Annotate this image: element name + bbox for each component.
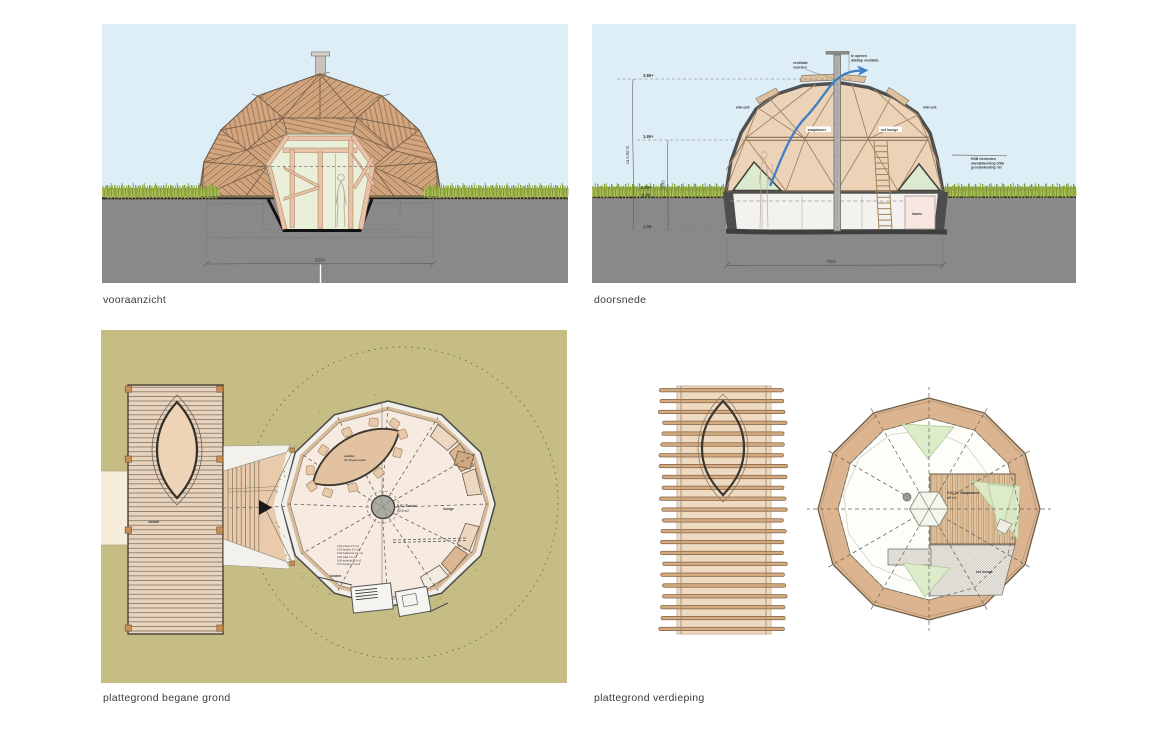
svg-text:voorzien: voorzien [793,65,807,69]
svg-text:gevelbekleding riet: gevelbekleding riet [971,166,1003,170]
svg-text:0.00: 0.00 [642,193,651,198]
svg-text:5500: 5500 [315,258,326,263]
svg-text:2590: 2590 [661,180,666,190]
svg-text:0.20+: 0.20+ [641,185,652,190]
svg-text:x.x m2: x.x m2 [947,496,957,500]
svg-text:3.80+: 3.80+ [643,73,654,78]
svg-text:0.03 keuken 6.2 m2: 0.03 keuken 6.2 m2 [337,548,360,552]
svg-text:1.00-: 1.00- [643,224,653,229]
svg-text:wtw unit: wtw unit [922,106,937,110]
svg-text:dakflap ventilatie: dakflap ventilatie [851,58,879,62]
svg-text:net lounge: net lounge [881,128,898,132]
svg-text:doorsnede: doorsnede [594,294,646,306]
svg-text:10-12 personen: 10-12 personen [344,458,366,462]
svg-text:7000: 7000 [826,259,837,264]
svg-text:net lounge: net lounge [976,570,993,574]
svg-text:plattegrond begane grond: plattegrond begane grond [103,692,230,704]
svg-text:plattegrond verdieping: plattegrond verdieping [594,692,705,704]
svg-text:keuken: keuken [330,574,341,578]
svg-text:1.90+: 1.90+ [643,134,654,139]
svg-text:0.04 badkamer 4.1 m2: 0.04 badkamer 4.1 m2 [337,551,364,555]
svg-text:0.07 berging 5.0 m2: 0.07 berging 5.0 m2 [337,562,361,566]
svg-text:wtw unit: wtw unit [735,106,750,110]
svg-text:kasten: kasten [912,212,922,216]
svg-text:0.01 'Dome': 0.01 'Dome' [397,504,417,508]
svg-text:vooraanzicht: vooraanzicht [103,294,166,306]
svg-text:lounge: lounge [443,507,454,511]
svg-text:slaapkamer: slaapkamer [808,128,827,132]
svg-text:ca 5.00 m: ca 5.00 m [625,145,630,164]
svg-text:0.06 techniek 2.4 m2: 0.06 techniek 2.4 m2 [337,558,362,562]
svg-text:0.02 entree 3.5 m2: 0.02 entree 3.5 m2 [337,544,359,548]
svg-text:52.6 m2: 52.6 m2 [397,509,409,513]
svg-text:vlonder: vlonder [148,520,160,524]
svg-text:0.05 toilet 1.6 m2: 0.05 toilet 1.6 m2 [337,555,357,559]
svg-text:0.01 2e slaapkamer: 0.01 2e slaapkamer [947,491,980,495]
